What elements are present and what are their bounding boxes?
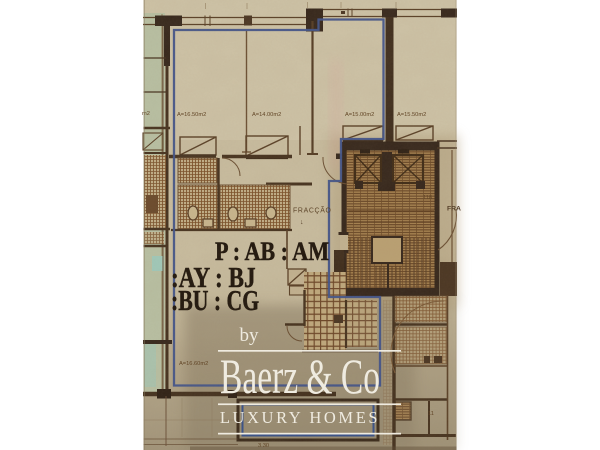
svg-text:Baerz & Co: Baerz & Co <box>220 350 380 405</box>
svg-text:by: by <box>240 325 260 346</box>
svg-text:LUXURY HOMES: LUXURY HOMES <box>220 408 380 427</box>
